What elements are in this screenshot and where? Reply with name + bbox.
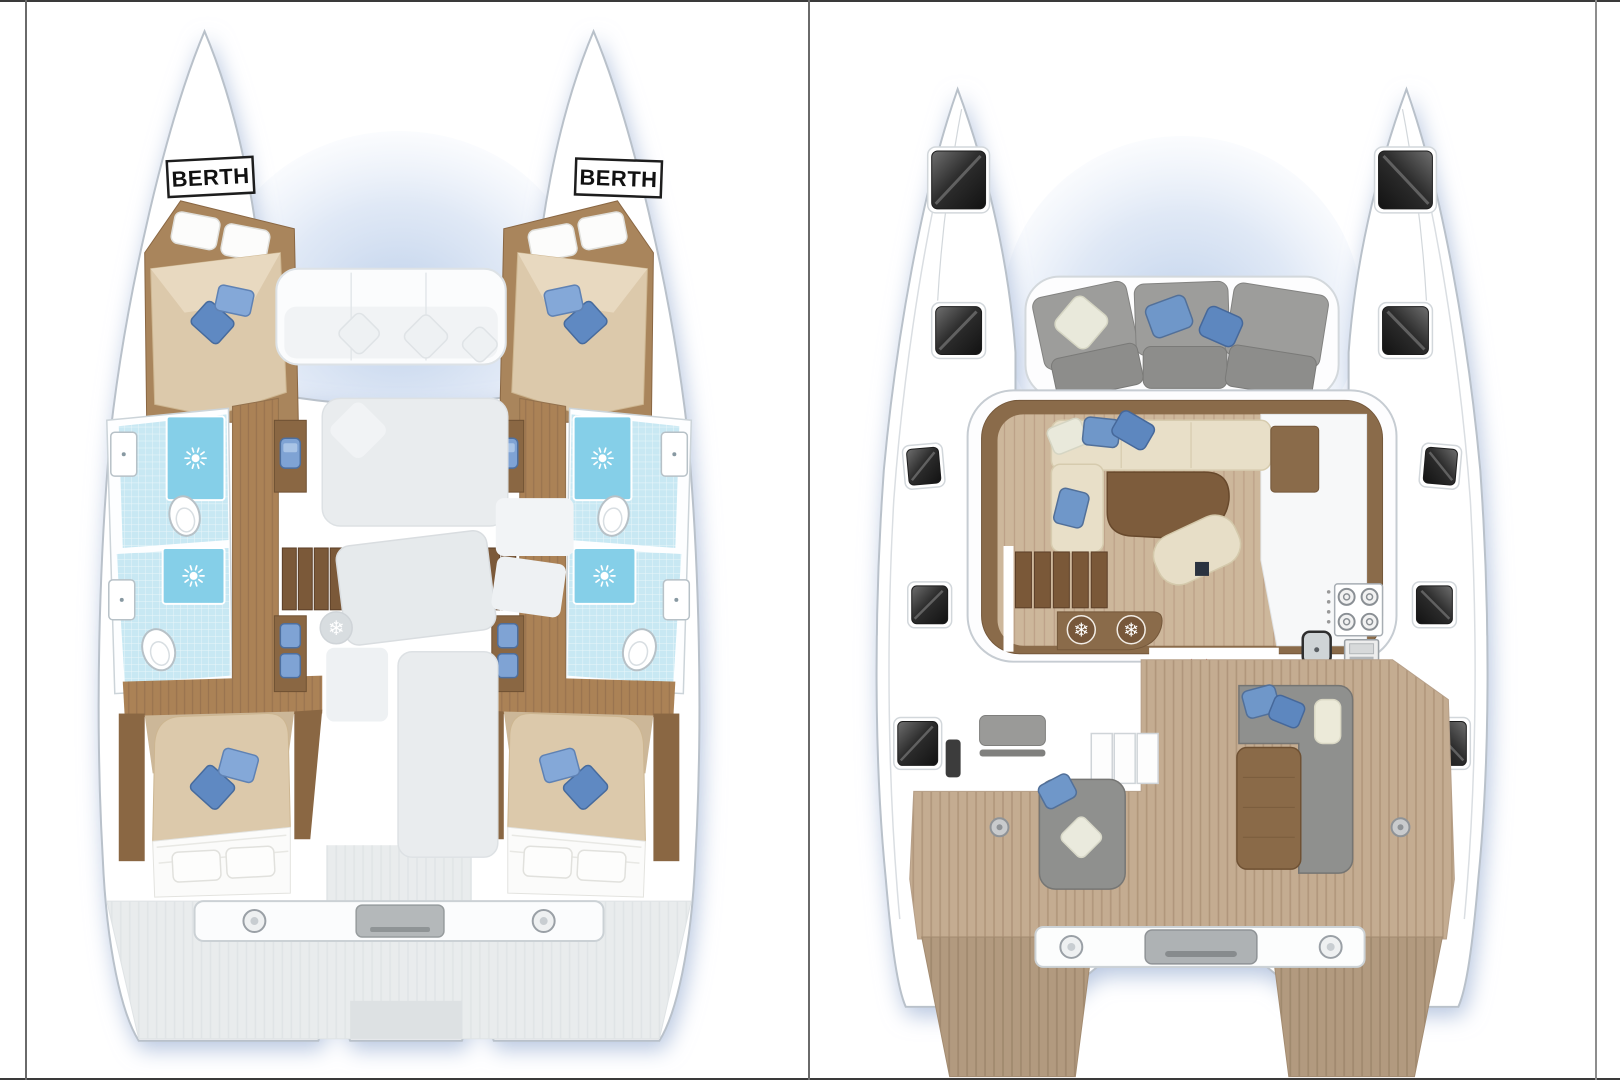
hatch-window-icon — [928, 147, 990, 213]
berth-label-starboard: BERTH — [575, 158, 662, 197]
main-deck-panel: ❄ ❄ — [810, 0, 1595, 1080]
forward-cockpit — [1025, 277, 1338, 401]
helm-console — [946, 739, 961, 777]
aft-cockpit — [910, 660, 1455, 1077]
galley-sink-icon — [1303, 632, 1331, 664]
snowflake-icon: ❄ — [1067, 616, 1095, 644]
hatch-window-icon — [902, 443, 946, 490]
sliding-door — [1149, 648, 1279, 660]
main-deck-plan: ❄ ❄ — [810, 0, 1595, 1080]
snowflake-icon: ❄ — [1117, 616, 1145, 644]
stove-icon — [1327, 584, 1383, 636]
svg-text:❄: ❄ — [1123, 621, 1139, 642]
berth-label-port: BERTH — [167, 157, 255, 197]
helm-bench — [980, 716, 1046, 746]
lower-deck-plan: ❄ BERTH BERTH — [27, 0, 808, 1080]
hatch-window-icon — [894, 718, 942, 770]
cockpit-table — [1237, 747, 1301, 869]
snowflake-icon: ❄ — [320, 612, 352, 644]
companionway-stairs — [1015, 552, 1107, 608]
svg-text:❄: ❄ — [1073, 621, 1089, 642]
pillow-cream — [1315, 700, 1341, 744]
cockpit-steps — [1091, 734, 1158, 784]
yacht-floor-plan: ❄ BERTH BERTH — [0, 0, 1620, 1080]
berth-label-text: BERTH — [171, 163, 250, 192]
transom-beam — [1035, 927, 1364, 967]
hatch-window-icon — [932, 303, 986, 359]
saloon: ❄ ❄ — [968, 390, 1397, 668]
berth-label-text: BERTH — [579, 165, 658, 193]
svg-text:❄: ❄ — [328, 618, 345, 640]
transom-beam — [195, 901, 604, 941]
hatch-window-icon — [908, 582, 952, 628]
lower-deck-panel: ❄ BERTH BERTH — [27, 0, 808, 1080]
table-leg — [1195, 562, 1209, 576]
frame-right-line — [1595, 0, 1597, 1080]
